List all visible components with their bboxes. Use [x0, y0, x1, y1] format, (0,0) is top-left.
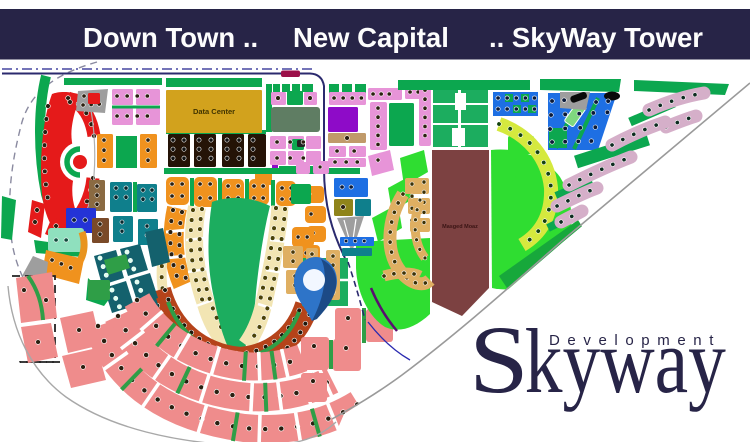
svg-text:Data Center: Data Center	[193, 107, 235, 116]
svg-text:S: S	[469, 307, 529, 413]
svg-text:Down Town ..: Down Town ..	[83, 22, 258, 53]
svg-text:.. SkyWay Tower: .. SkyWay Tower	[489, 22, 703, 53]
svg-text:Masged Moaz: Masged Moaz	[442, 224, 478, 230]
svg-text:kyway: kyway	[525, 311, 726, 413]
svg-text:New Capital: New Capital	[293, 22, 449, 53]
